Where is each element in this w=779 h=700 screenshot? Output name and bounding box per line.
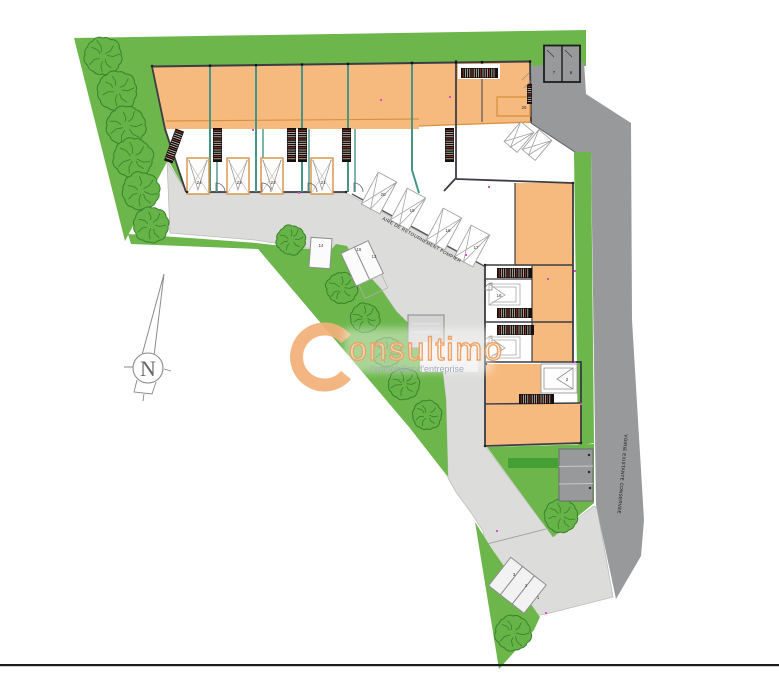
svg-text:2: 2: [566, 377, 569, 382]
svg-text:21: 21: [321, 180, 327, 185]
svg-text:24: 24: [197, 180, 203, 185]
svg-text:14: 14: [319, 243, 324, 248]
svg-text:onsultimo: onsultimo: [349, 331, 504, 367]
svg-text:17: 17: [473, 245, 479, 250]
svg-text:18: 18: [445, 228, 451, 233]
svg-text:15: 15: [357, 247, 362, 252]
svg-text:16: 16: [496, 293, 502, 298]
svg-text:26: 26: [521, 105, 527, 110]
svg-text:19: 19: [409, 208, 415, 213]
svg-text:l'immobilier d'entreprise: l'immobilier d'entreprise: [370, 364, 464, 374]
svg-text:23: 23: [237, 180, 243, 185]
svg-text:N: N: [140, 356, 156, 381]
svg-text:22: 22: [271, 180, 277, 185]
svg-text:13: 13: [372, 254, 377, 259]
svg-text:20: 20: [380, 192, 386, 197]
